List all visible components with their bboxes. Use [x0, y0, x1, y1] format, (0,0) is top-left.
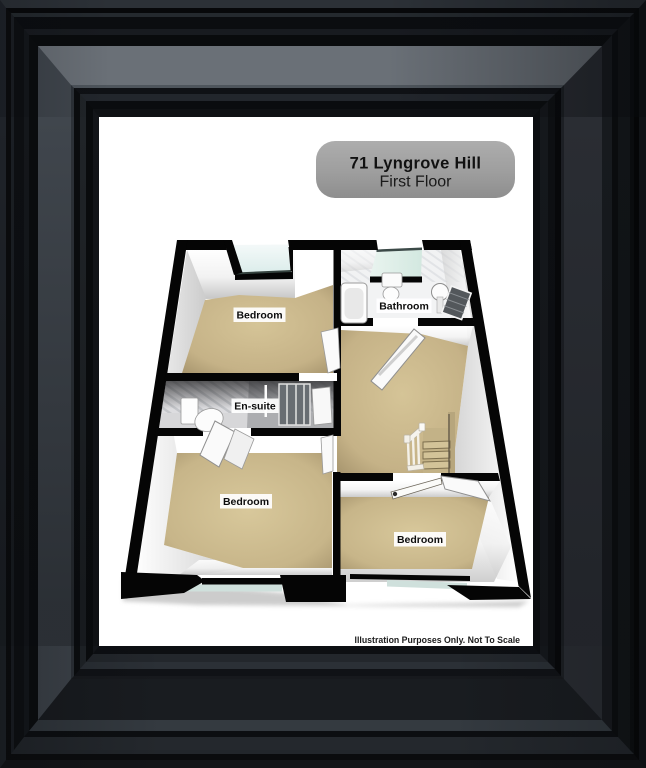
- svg-text:Illustration Purposes Only. No: Illustration Purposes Only. Not To Scale: [355, 635, 521, 645]
- svg-text:Bathroom: Bathroom: [379, 301, 429, 313]
- svg-text:First Floor: First Floor: [380, 174, 453, 191]
- svg-text:Bedroom: Bedroom: [397, 534, 443, 546]
- svg-text:Bedroom: Bedroom: [236, 310, 282, 322]
- svg-text:71 Lyngrove Hill: 71 Lyngrove Hill: [350, 155, 482, 173]
- svg-text:Bedroom: Bedroom: [223, 496, 269, 508]
- svg-text:En-suite: En-suite: [234, 401, 276, 413]
